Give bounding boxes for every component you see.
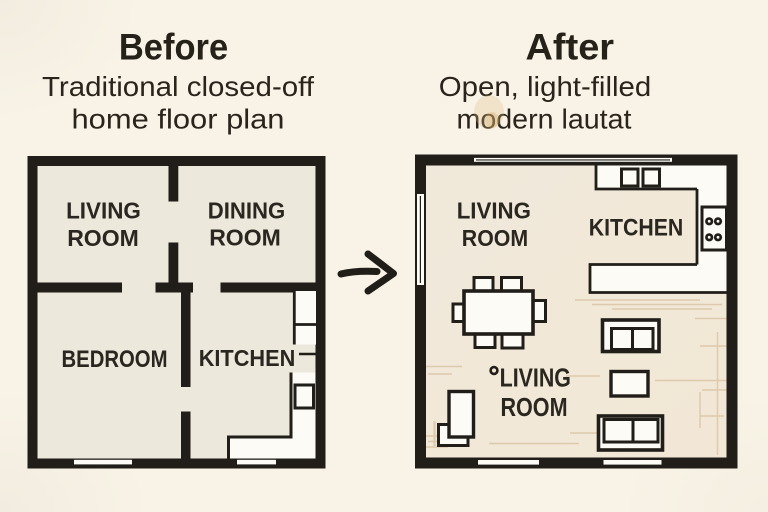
svg-text:ROOM: ROOM — [209, 225, 281, 251]
svg-text:Open, light-filled: Open, light-filled — [439, 71, 652, 102]
svg-text:LIVING: LIVING — [457, 197, 531, 223]
svg-text:Traditional closed-off: Traditional closed-off — [42, 71, 314, 102]
svg-text:DINING: DINING — [208, 197, 286, 223]
svg-text:LIVING: LIVING — [500, 365, 571, 393]
svg-text:LIVING: LIVING — [66, 197, 141, 223]
svg-text:KITCHEN: KITCHEN — [199, 345, 296, 371]
svg-text:After: After — [526, 27, 615, 68]
svg-text:ROOM: ROOM — [462, 225, 528, 251]
svg-text:BEDROOM: BEDROOM — [62, 346, 168, 373]
svg-text:Before: Before — [119, 27, 228, 68]
svg-text:home floor plan: home floor plan — [72, 104, 285, 135]
svg-text:KITCHEN: KITCHEN — [589, 214, 684, 241]
svg-text:ROOM: ROOM — [67, 225, 139, 251]
svg-text:ROOM: ROOM — [500, 394, 567, 422]
